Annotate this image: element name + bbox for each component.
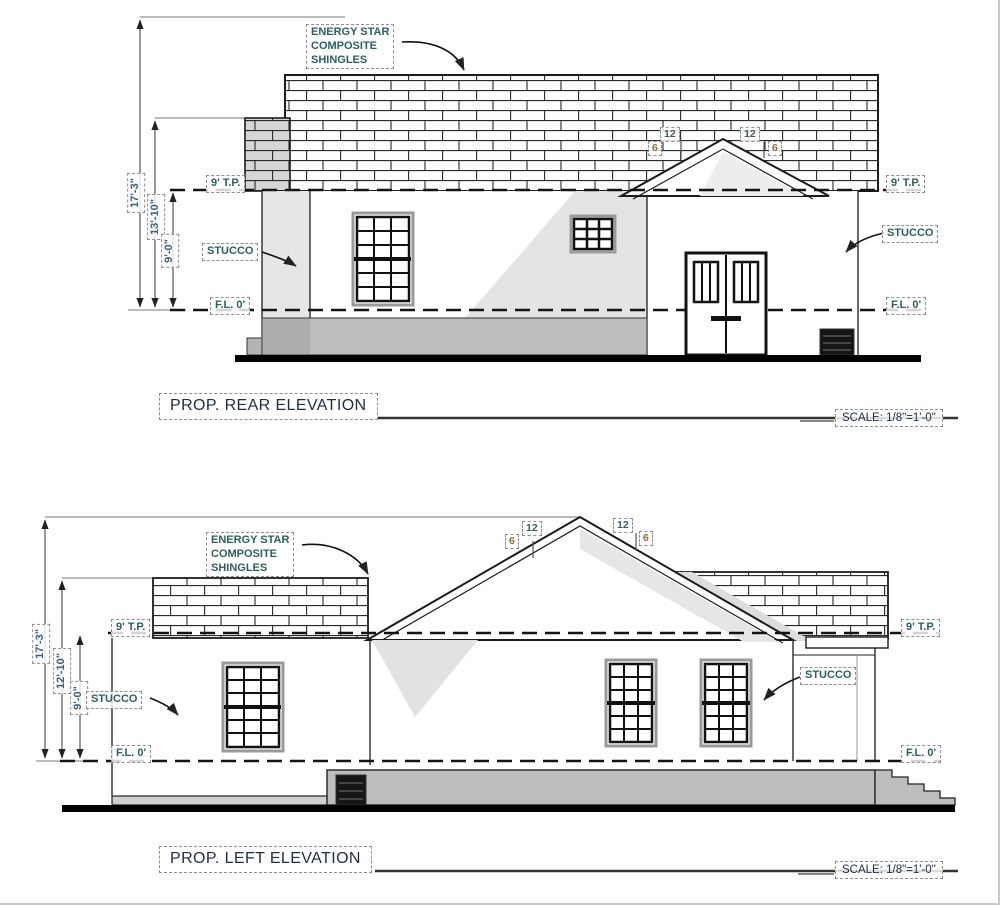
rear-dim-ridge-label: 13'-10" — [147, 194, 165, 240]
shingles-leader-arrow-2 — [302, 544, 368, 574]
rear-scale: SCALE: 1/8"=1'-0" — [835, 409, 943, 427]
right-fascia — [806, 637, 888, 648]
rear-top-plate-label-left: 9' T.P. — [206, 175, 245, 193]
left-wing-footing — [112, 796, 330, 805]
rear-shingles-note-line1: ENERGY STAR — [311, 26, 389, 40]
left-shingles-note-line1: ENERGY STAR — [211, 534, 289, 548]
left-floor-label-left: F.L. 0' — [111, 745, 151, 763]
rear-slope-run-left: 6 — [648, 141, 662, 156]
left-slope-run-right: 6 — [639, 531, 653, 546]
left-slope-rise-left: 12 — [522, 521, 542, 536]
rear-stucco-label-left: STUCCO — [202, 243, 258, 261]
door-handle — [711, 316, 741, 321]
left-crawl-vent — [336, 775, 366, 805]
left-dim-ridge-label: 12'-10" — [53, 648, 71, 694]
left-stucco-label-left: STUCCO — [86, 691, 142, 709]
left-title: PROP. LEFT ELEVATION — [159, 846, 372, 873]
rear-title: PROP. REAR ELEVATION — [159, 393, 378, 420]
left-top-plate-label-right: 9' T.P. — [901, 619, 940, 637]
rear-small-window — [571, 216, 615, 252]
rear-dim-total-label: 17'-3" — [127, 173, 145, 213]
left-stucco-label-right: STUCCO — [800, 667, 856, 685]
rear-floor-label-left: F.L. 0' — [210, 297, 250, 315]
left-shingles-note-line3: SHINGLES — [211, 562, 289, 576]
left-dimension-lines — [45, 520, 80, 758]
main-foundation — [327, 770, 875, 805]
left-top-plate-label-left: 9' T.P. — [111, 619, 150, 637]
entry-steps — [875, 770, 955, 805]
rear-floor-label-right: F.L. 0' — [886, 297, 926, 315]
rear-slope-rise-right: 12 — [740, 127, 760, 142]
left-window-3 — [701, 660, 751, 746]
left-shingles-note-line2: COMPOSITE — [211, 548, 289, 562]
left-window-2 — [606, 660, 656, 746]
rear-stucco-label-right: STUCCO — [882, 225, 938, 243]
left-floor-label-right: F.L. 0' — [901, 745, 941, 763]
rear-tall-window — [353, 213, 413, 305]
rear-dim-wall-label: 9'-0" — [161, 234, 179, 268]
rear-double-door — [686, 253, 766, 355]
left-wing-roof-band — [153, 578, 368, 638]
rear-slope-run-right: 6 — [768, 141, 782, 156]
left-window-1 — [223, 663, 283, 751]
left-dim-total-label: 17'-3" — [32, 624, 50, 664]
rear-top-plate-label-right: 9' T.P. — [886, 175, 925, 193]
rear-crawl-vent — [820, 329, 854, 355]
rear-shingles-note-line3: SHINGLES — [311, 54, 389, 68]
left-scale: SCALE: 1/8"=1'-0" — [835, 861, 943, 879]
elevation-sheet: ENERGY STAR COMPOSITE SHINGLES 17'-3" 13… — [0, 0, 1000, 905]
rear-slope-rise-left: 12 — [660, 127, 680, 142]
left-slope-rise-right: 12 — [613, 518, 633, 533]
left-ground-line — [62, 805, 955, 812]
shingles-leader-arrow — [402, 42, 464, 70]
rear-left-wing-roof — [245, 118, 290, 191]
rear-shingles-note: ENERGY STAR COMPOSITE SHINGLES — [306, 24, 394, 69]
left-slope-run-left: 6 — [505, 534, 519, 549]
rear-ground-line — [235, 355, 921, 362]
left-shingles-note: ENERGY STAR COMPOSITE SHINGLES — [206, 532, 294, 577]
rear-shingles-note-line2: COMPOSITE — [311, 40, 389, 54]
